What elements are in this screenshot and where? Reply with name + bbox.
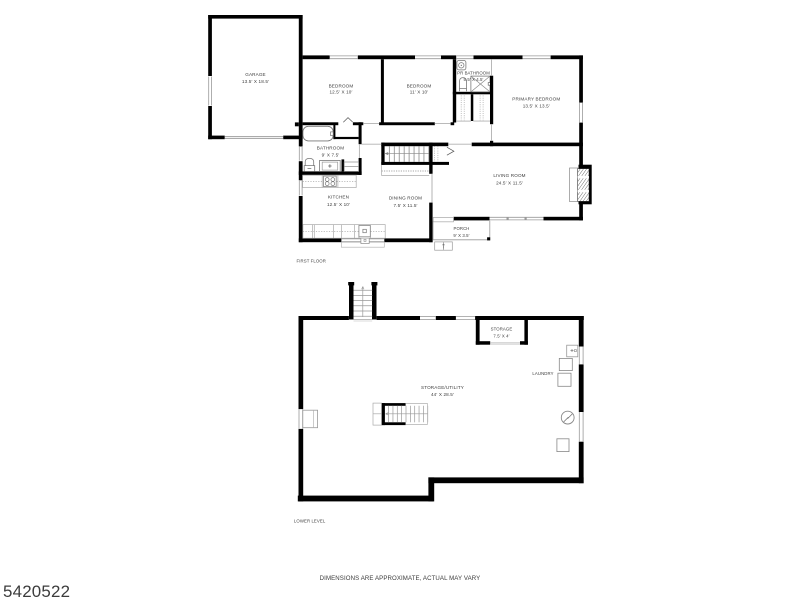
- svg-text:PRIMARY BEDROOM: PRIMARY BEDROOM: [512, 96, 560, 101]
- svg-text:11′ X 10′: 11′ X 10′: [410, 89, 429, 94]
- svg-text:KITCHEN: KITCHEN: [328, 195, 349, 200]
- svg-text:BEDROOM: BEDROOM: [329, 83, 354, 88]
- svg-text:STORAGE/UTILITY: STORAGE/UTILITY: [421, 385, 464, 390]
- svg-text:PR BATHROOM: PR BATHROOM: [457, 71, 490, 76]
- svg-text:LOWER LEVEL: LOWER LEVEL: [294, 519, 326, 524]
- svg-text:12.5′ X 10′: 12.5′ X 10′: [327, 202, 350, 207]
- svg-text:LIVING ROOM: LIVING ROOM: [493, 173, 525, 178]
- svg-text:LAUNDRY: LAUNDRY: [532, 371, 553, 376]
- svg-text:GARAGE: GARAGE: [245, 72, 266, 77]
- svg-text:24.5′ X 11.5′: 24.5′ X 11.5′: [496, 180, 523, 185]
- svg-text:13.5′ X 13.5′: 13.5′ X 13.5′: [523, 104, 550, 109]
- svg-text:12.5′ X 10′: 12.5′ X 10′: [329, 89, 352, 94]
- svg-text:44′ X 28.5′: 44′ X 28.5′: [431, 392, 454, 397]
- svg-text:PORCH: PORCH: [453, 226, 469, 231]
- svg-text:DIMENSIONS ARE APPROXIMATE, AC: DIMENSIONS ARE APPROXIMATE, ACTUAL MAY V…: [320, 575, 481, 582]
- svg-text:9′ X 7.5′: 9′ X 7.5′: [322, 152, 340, 157]
- svg-text:5.5′ X 4.5′: 5.5′ X 4.5′: [464, 77, 484, 82]
- svg-text:13.5′ X 18.5′: 13.5′ X 18.5′: [242, 79, 269, 84]
- svg-text:7.5′ X 4′: 7.5′ X 4′: [493, 333, 509, 338]
- svg-text:FIRST FLOOR: FIRST FLOOR: [297, 258, 326, 263]
- svg-text:STORAGE: STORAGE: [491, 327, 513, 332]
- svg-text:5420522: 5420522: [3, 582, 70, 600]
- svg-text:9′ X 3.5′: 9′ X 3.5′: [453, 233, 469, 238]
- svg-text:7.5′ X 11.5′: 7.5′ X 11.5′: [393, 203, 417, 208]
- svg-text:BEDROOM: BEDROOM: [407, 83, 432, 88]
- svg-text:DINING ROOM: DINING ROOM: [389, 196, 422, 201]
- svg-text:BATHROOM: BATHROOM: [317, 146, 344, 151]
